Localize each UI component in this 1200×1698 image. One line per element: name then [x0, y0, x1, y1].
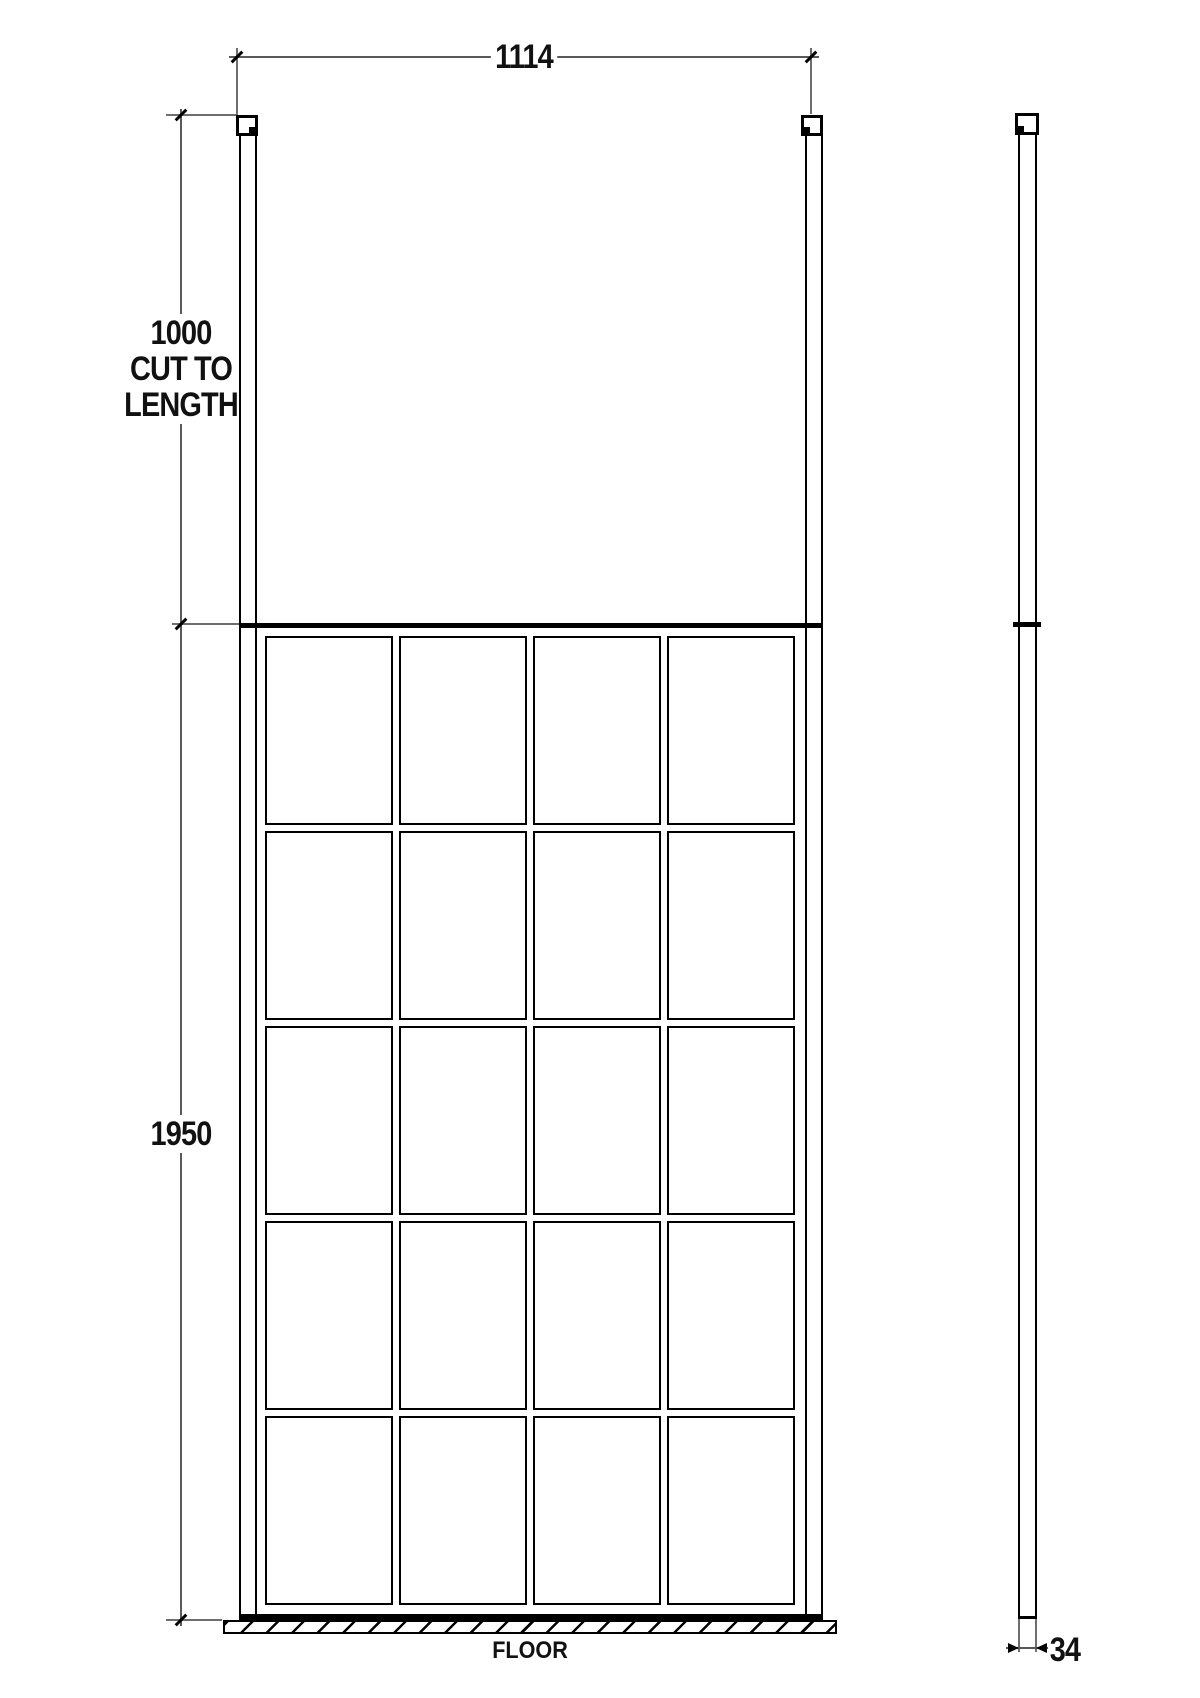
- glass-pane: [533, 831, 661, 1020]
- glass-pane: [265, 1416, 393, 1605]
- glass-pane: [399, 831, 527, 1020]
- glass-pane: [399, 636, 527, 825]
- frame-top-rail: [239, 623, 823, 628]
- glass-pane: [399, 1221, 527, 1410]
- height-dimension-label: 1950: [146, 1115, 215, 1153]
- thickness-dimension-label: 34: [1048, 1632, 1082, 1668]
- glass-pane: [667, 1416, 795, 1605]
- glass-pane: [667, 1221, 795, 1410]
- ceiling-post-left: [239, 136, 257, 1614]
- glass-pane: [667, 636, 795, 825]
- glass-pane: [399, 1416, 527, 1605]
- glass-pane: [533, 636, 661, 825]
- post-length-note-1: CUT TO: [124, 351, 238, 387]
- floor-label: FLOOR: [492, 1637, 568, 1665]
- floor-extension-line: [166, 1619, 222, 1621]
- glass-pane: [265, 1221, 393, 1410]
- side-profile: [1018, 135, 1037, 1619]
- floor-hatch: [223, 1620, 837, 1634]
- pane-grid: [265, 636, 795, 1605]
- glass-pane: [533, 1416, 661, 1605]
- ceiling-bracket-right: [801, 115, 823, 136]
- dimension-arrow-right: [1036, 1643, 1047, 1653]
- ceiling-bracket-left: [236, 115, 258, 136]
- glass-pane: [265, 636, 393, 825]
- glass-pane: [533, 1026, 661, 1215]
- bracket-notch: [249, 127, 255, 133]
- glass-pane: [667, 1026, 795, 1215]
- glass-pane: [265, 831, 393, 1020]
- glass-pane: [265, 1026, 393, 1215]
- technical-drawing: 1114 1000 CUT TO LENGTH 1950: [0, 0, 1200, 1698]
- width-dimension-label: 1114: [491, 38, 557, 76]
- dimension-arrow-left: [1008, 1643, 1019, 1653]
- bracket-notch: [804, 127, 810, 133]
- post-length-label: 1000 CUT TO LENGTH: [120, 314, 242, 424]
- side-panel-top-mark: [1013, 622, 1041, 627]
- glass-pane: [399, 1026, 527, 1215]
- bracket-notch: [1018, 126, 1024, 132]
- side-ceiling-bracket: [1015, 113, 1039, 135]
- post-length-note-2: LENGTH: [124, 387, 238, 423]
- glass-pane: [667, 831, 795, 1020]
- post-length-value: 1000: [124, 315, 238, 351]
- glass-pane: [533, 1221, 661, 1410]
- ceiling-post-right: [805, 136, 823, 1614]
